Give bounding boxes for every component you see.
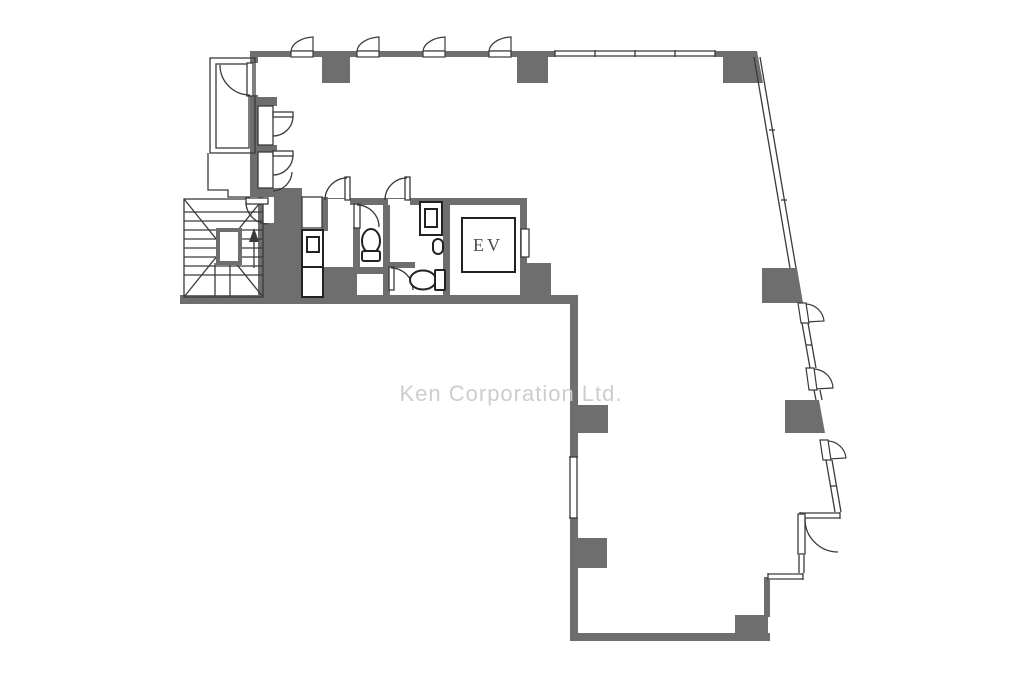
lobby-bottom-fill <box>323 267 357 297</box>
awning-window-icon <box>806 368 833 390</box>
balcony-inner <box>216 64 249 148</box>
pillar-core-corner <box>524 263 551 296</box>
closet-cell-2 <box>258 152 273 188</box>
toilet-icon <box>410 270 445 290</box>
window-bottom-right-icon <box>768 573 803 580</box>
pipe-space-pocket <box>302 197 322 228</box>
wc2-door-arc-icon <box>385 177 410 200</box>
awning-windows-slant <box>798 303 846 460</box>
pillar-slant-2 <box>785 400 825 433</box>
wc1-door-arc-icon <box>354 204 379 228</box>
urinal-icon <box>433 239 443 254</box>
watermark-text: Ken Corporation Ltd. <box>399 381 622 406</box>
balcony-door-arc-icon <box>220 63 253 96</box>
closet2-door-arc-icon <box>273 151 293 191</box>
window-band-top-icon <box>555 50 715 57</box>
awning-window-icon <box>423 37 445 57</box>
pillar-top-1 <box>322 51 350 83</box>
closet1-door-arc-icon <box>273 112 293 136</box>
elevator-door <box>521 229 529 257</box>
window-step-icon <box>800 512 840 519</box>
toilet-icon <box>362 229 380 261</box>
awning-window-icon <box>357 37 379 57</box>
pillar-top-2 <box>517 51 548 83</box>
wall-lower-wing-right <box>764 577 770 617</box>
pillar-slant-1 <box>762 268 803 303</box>
elevator-shaft: EV <box>462 218 515 272</box>
closet-cell-1 <box>258 106 273 145</box>
stairs-icon <box>184 199 263 297</box>
pillar-lower-right <box>735 615 768 641</box>
wall-left-upper <box>250 51 258 63</box>
pillar-lower-a <box>578 405 608 433</box>
washbasin-icon <box>420 202 442 235</box>
pipe-shaft-unit <box>302 230 323 297</box>
pillar-lower-b <box>578 538 607 568</box>
structural-walls <box>180 51 825 641</box>
awning-window-icon <box>489 37 511 57</box>
closet-frame-top <box>250 97 277 106</box>
awning-window-icon <box>291 37 313 57</box>
floor-plan-page: EV Ken Corporation Ltd. <box>0 0 1024 683</box>
lobby-door-arc-icon <box>325 177 350 200</box>
terrace-door-arc-icon <box>798 514 838 554</box>
stair-landing <box>218 230 240 263</box>
elevator-label: EV <box>473 235 503 255</box>
thin-linework <box>184 50 841 580</box>
awning-window-icon <box>798 303 824 323</box>
exterior-notch-outline <box>208 153 250 197</box>
doors <box>220 63 838 554</box>
awning-window-icon <box>820 440 846 460</box>
window-jog-icon <box>798 555 805 573</box>
floor-plan-drawing: EV Ken Corporation Ltd. <box>0 0 1024 683</box>
